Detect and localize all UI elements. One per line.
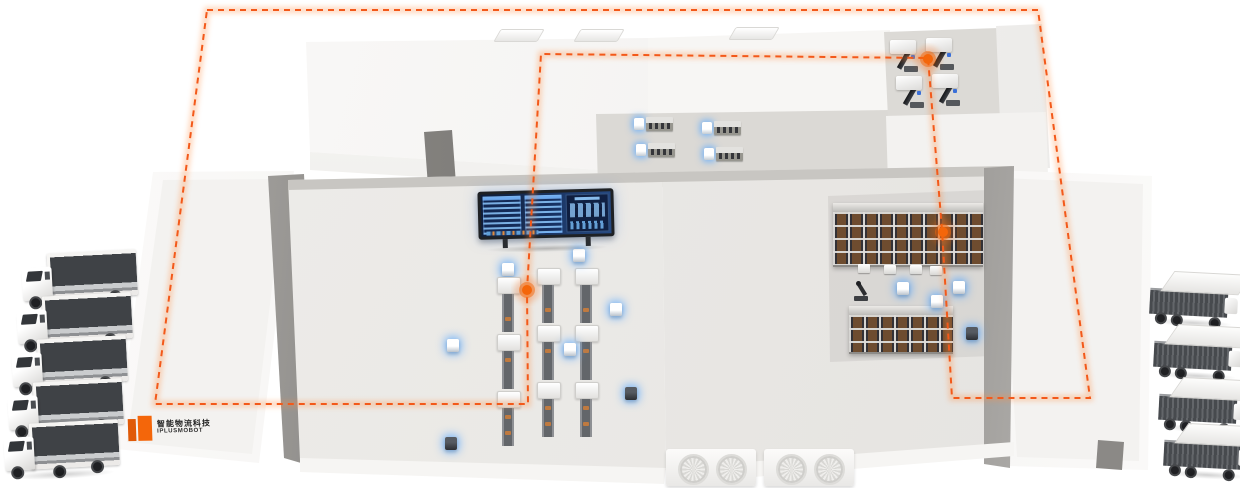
- machine-indicator: [911, 55, 915, 59]
- agv-robot: [953, 281, 965, 294]
- logo-bar: [128, 418, 137, 440]
- asrs-rack: [833, 203, 983, 267]
- dashboard-stat-cells: [570, 202, 605, 217]
- container-trailer: [1153, 323, 1240, 380]
- cnc-machine: [890, 40, 924, 74]
- machine-station: [634, 117, 674, 132]
- agv-robot: [564, 343, 576, 356]
- docked-agv: [636, 144, 646, 156]
- fan-icon: [716, 454, 747, 485]
- conveyor-item: [545, 406, 551, 410]
- conveyor-item: [583, 422, 589, 426]
- pallet-rack: [849, 306, 953, 354]
- conveyor-item: [583, 406, 589, 410]
- line-machine: [497, 334, 521, 351]
- docked-agv: [704, 148, 714, 160]
- machine-station: [704, 147, 744, 162]
- machine-base: [946, 100, 960, 106]
- dashboard-table-panel: [524, 195, 563, 234]
- rack-cart: [884, 265, 896, 274]
- truck-wheel: [53, 465, 67, 479]
- machine-base: [940, 64, 954, 70]
- conveyor-item: [583, 349, 589, 353]
- roof-vent-icon: [728, 27, 780, 40]
- trailer-roof: [1160, 271, 1240, 295]
- line-conveyor: [580, 285, 592, 323]
- line-conveyor: [542, 285, 554, 323]
- dashboard-frame: [477, 188, 614, 240]
- cnc-machine: [932, 74, 966, 108]
- line-conveyor: [502, 351, 514, 389]
- agv-robot: [445, 437, 457, 450]
- container-trailer: [1149, 270, 1240, 327]
- logo-bar: [138, 415, 153, 440]
- cnc-machine: [926, 38, 960, 72]
- conveyor-item: [583, 308, 589, 312]
- conveyor-item: [505, 358, 511, 362]
- conveyor-item: [505, 431, 511, 435]
- line-machine: [575, 325, 599, 342]
- agv-robot: [931, 295, 943, 308]
- brand-logo-icon: [128, 415, 153, 440]
- machine-head: [890, 40, 916, 54]
- line-machine: [575, 268, 599, 285]
- machine-base: [910, 102, 924, 108]
- trailer-cab: [1228, 351, 1240, 368]
- line-conveyor: [580, 399, 592, 437]
- dashboard-panel-header: [575, 197, 600, 201]
- brand-logo-text: 智能物流科技 IPLUSMOBOT: [157, 419, 212, 435]
- trailer-roof: [1169, 377, 1240, 401]
- truck-wheel: [11, 466, 25, 480]
- line-conveyor: [542, 342, 554, 380]
- robot-arm-base: [854, 296, 868, 301]
- smart-factory-scene: 智能物流科技 IPLUSMOBOT: [0, 0, 1240, 488]
- line-conveyor: [580, 342, 592, 380]
- hvac-unit: [666, 449, 756, 486]
- rack-shelving: [849, 315, 953, 352]
- trailer-roof: [1174, 423, 1240, 447]
- conveyor-item: [505, 317, 511, 321]
- docked-agv: [634, 118, 644, 130]
- roof-vent-icon: [493, 29, 545, 42]
- robot-arm: [852, 281, 870, 301]
- roof-vent-icon: [573, 29, 625, 42]
- rack-cart: [858, 264, 870, 273]
- machine-head: [926, 38, 952, 52]
- line-conveyor: [502, 294, 514, 332]
- rack-cart: [910, 265, 922, 274]
- machine-base: [904, 66, 918, 72]
- dashboard-screen: [477, 188, 614, 240]
- machine-indicator: [953, 89, 957, 93]
- agv-robot: [610, 303, 622, 316]
- conveyor-item: [545, 349, 551, 353]
- line-machine: [537, 382, 561, 399]
- truck-wheel: [91, 460, 105, 474]
- trailer-cab: [1233, 404, 1240, 421]
- agv-robot: [966, 327, 978, 340]
- dashboard-bar-chart: [570, 220, 605, 229]
- conveyor-item: [545, 422, 551, 426]
- trailer-wheel: [1169, 464, 1182, 477]
- delivery-truck: [1, 419, 122, 477]
- fan-icon: [776, 454, 807, 485]
- conveyor-item: [505, 415, 511, 419]
- trailer-cab: [1224, 298, 1238, 315]
- agv-robot: [897, 282, 909, 295]
- conveyor-item: [545, 308, 551, 312]
- machine-indicator: [947, 53, 951, 57]
- rack-cart: [930, 266, 942, 275]
- dashboard-display: [480, 191, 611, 236]
- machine-station: [702, 121, 742, 136]
- line-machine: [575, 382, 599, 399]
- rack-shelving: [833, 212, 983, 265]
- trailer-roof: [1164, 324, 1240, 348]
- fan-icon: [814, 454, 845, 485]
- agv-robot: [502, 263, 514, 276]
- rack-top-face: [833, 203, 983, 212]
- line-conveyor: [502, 408, 514, 446]
- trailer-wheel: [1222, 469, 1235, 482]
- line-machine: [497, 391, 521, 408]
- machine-indicator: [917, 91, 921, 95]
- truck-cargo-box: [29, 419, 120, 470]
- dashboard-stats-panel: [566, 193, 610, 232]
- trailer-wheel: [1185, 466, 1198, 479]
- brand-name-en: IPLUSMOBOT: [157, 428, 211, 435]
- processing-machine: [646, 117, 673, 131]
- line-machine: [497, 277, 521, 294]
- dashboard-table-panel: [483, 196, 522, 235]
- processing-machine: [716, 147, 743, 161]
- hvac-unit: [764, 449, 854, 486]
- line-conveyor: [542, 399, 554, 437]
- machine-head: [896, 76, 922, 90]
- cnc-machine: [896, 76, 930, 110]
- fan-icon: [678, 454, 709, 485]
- machine-head: [932, 74, 958, 88]
- agv-robot: [447, 339, 459, 352]
- robot-arm-joint: [856, 281, 861, 286]
- line-machine: [537, 268, 561, 285]
- brand-logo: 智能物流科技 IPLUSMOBOT: [127, 405, 254, 449]
- agv-robot: [625, 387, 637, 400]
- line-machine: [537, 325, 561, 342]
- docked-agv: [702, 122, 712, 134]
- machine-station: [636, 143, 676, 158]
- processing-machine: [648, 143, 675, 157]
- processing-machine: [714, 121, 741, 135]
- container-trailer: [1163, 422, 1240, 479]
